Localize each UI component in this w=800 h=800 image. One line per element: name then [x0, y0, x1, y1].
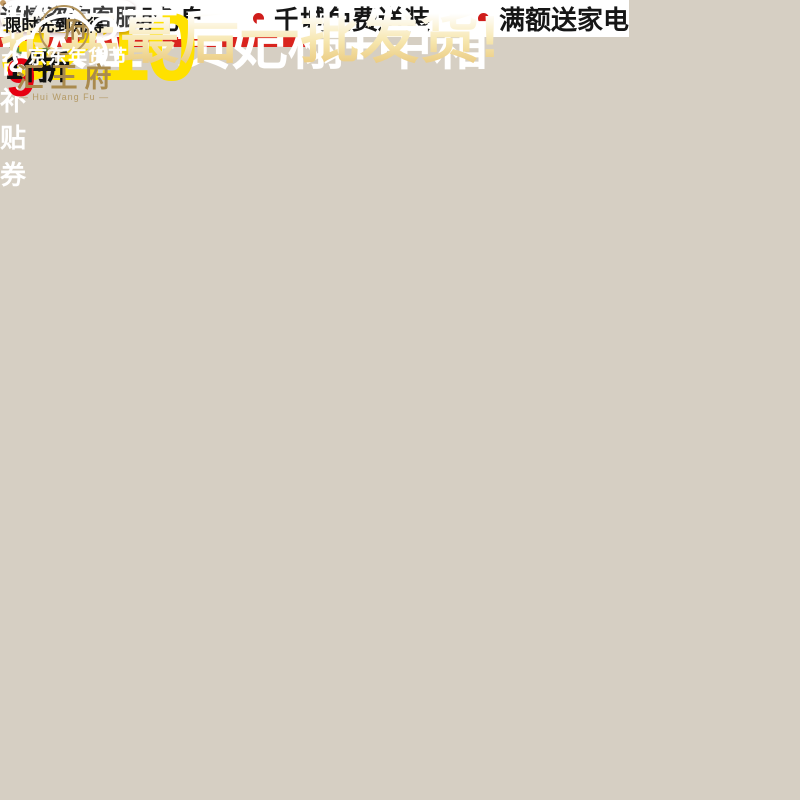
brand-name-en: — Hui Wang Fu — [0, 92, 128, 102]
living-room-photo [0, 0, 800, 800]
benefit-label: 满额送家电 [499, 0, 629, 37]
product-card: 抢年蕞后一批发货! 府 汇王府 — Hui Wang Fu — 京东年货节 平台… [0, 0, 800, 800]
benefit-item: 满额送家电 [478, 0, 629, 37]
festival-badge-label: 京东年货节 [28, 42, 136, 69]
